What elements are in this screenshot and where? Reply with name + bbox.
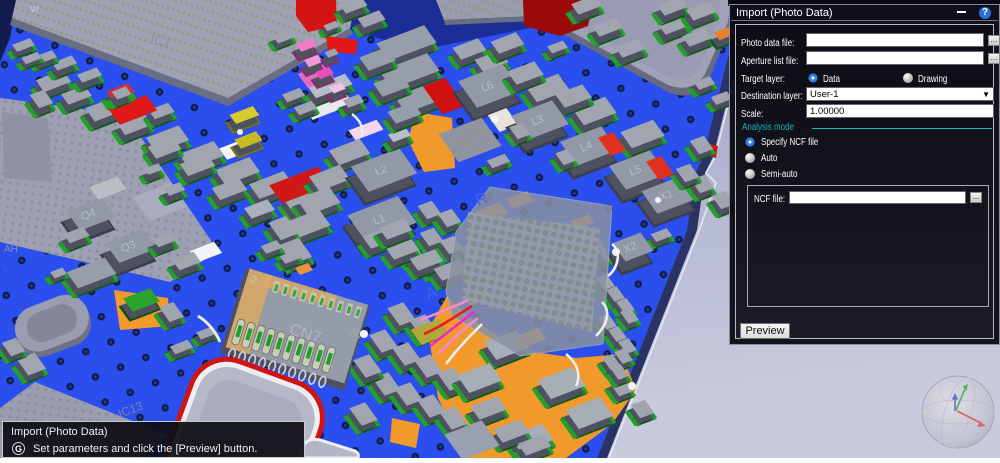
svg-text:AH: AH — [4, 244, 18, 255]
svg-text:V/: V/ — [30, 4, 39, 14]
